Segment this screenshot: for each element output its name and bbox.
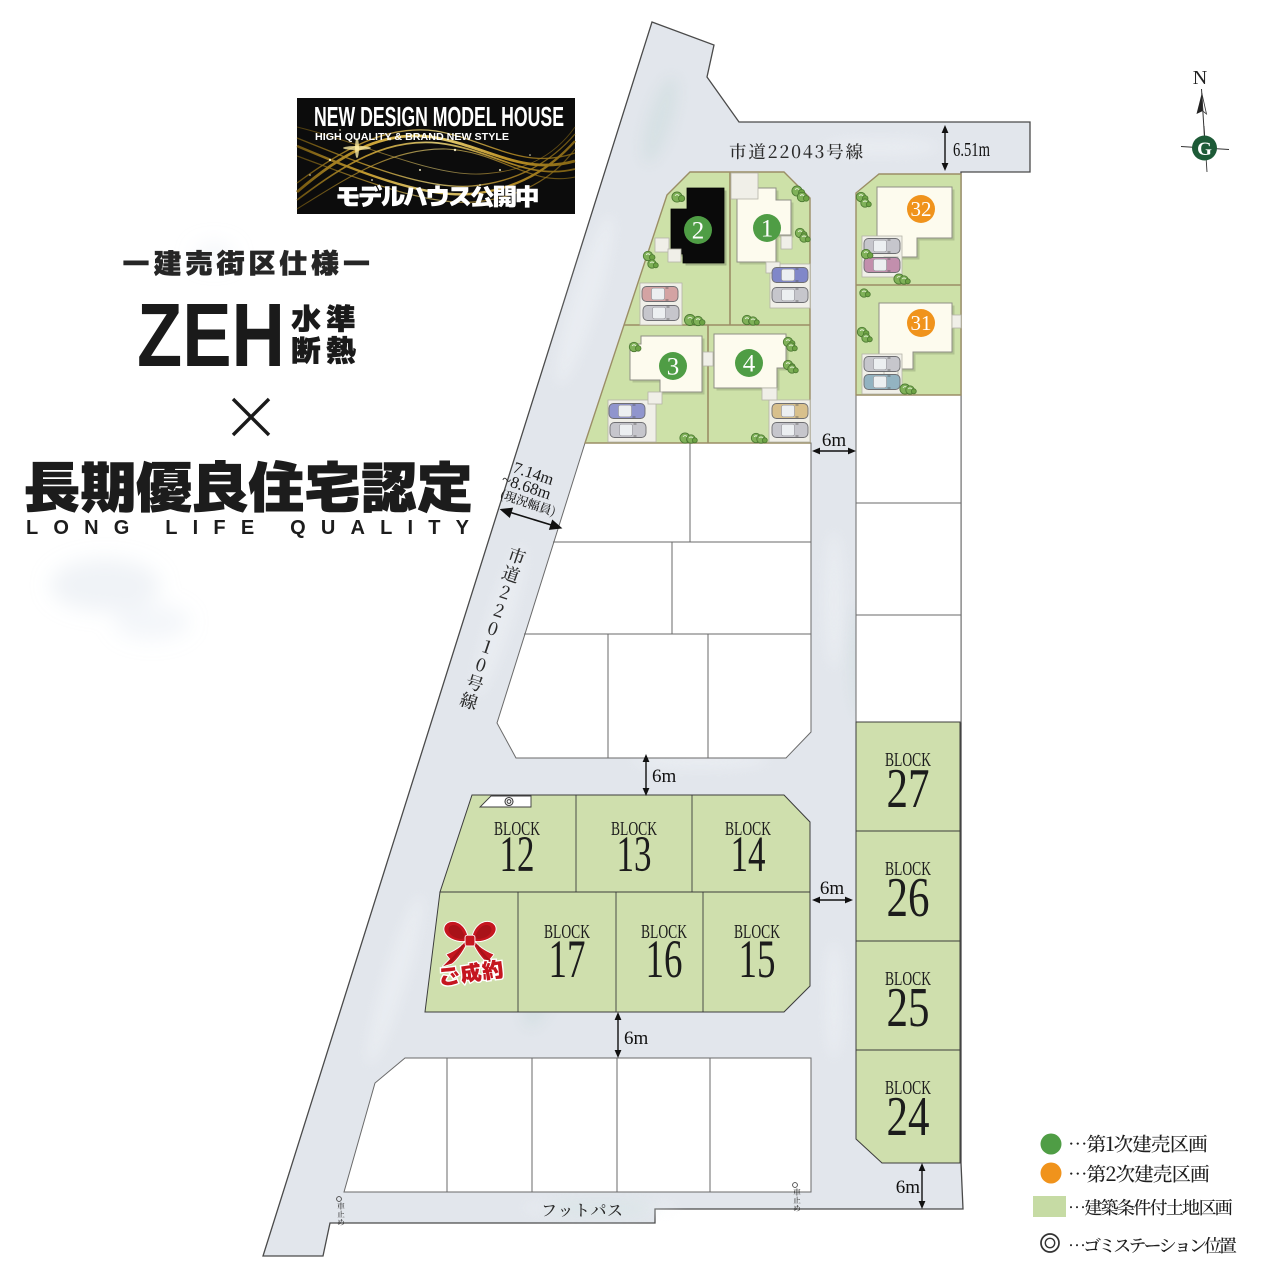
svg-text:13: 13 [617,827,652,883]
svg-text:6m: 6m [820,878,845,899]
svg-text:32: 32 [911,197,932,221]
svg-text:G: G [1197,139,1212,160]
svg-text:14: 14 [731,827,766,883]
svg-text:15: 15 [739,929,776,989]
svg-text:25: 25 [887,977,930,1039]
svg-text:ZEH: ZEH [137,286,285,386]
svg-text:1: 1 [761,216,774,243]
svg-text:17: 17 [549,929,586,989]
svg-text:4: 4 [743,351,756,378]
svg-text:24: 24 [887,1086,930,1148]
svg-text:16: 16 [646,929,683,989]
svg-text:N: N [1193,67,1207,89]
svg-text:6m: 6m [896,1177,921,1198]
svg-text:NEW DESIGN MODEL HOUSE: NEW DESIGN MODEL HOUSE [314,101,564,132]
svg-text:12: 12 [500,827,535,883]
svg-text:HIGH QUALITY & BRAND NEW STYLE: HIGH QUALITY & BRAND NEW STYLE [315,132,509,143]
svg-text:6m: 6m [624,1028,649,1049]
svg-text:3: 3 [667,354,680,381]
svg-text:6.51m: 6.51m [953,139,990,161]
svg-text:26: 26 [887,867,930,929]
svg-text:6m: 6m [652,766,677,787]
svg-text:27: 27 [887,758,930,820]
svg-text:6m: 6m [822,430,847,451]
svg-text:2: 2 [692,218,705,245]
svg-text:31: 31 [911,311,932,335]
